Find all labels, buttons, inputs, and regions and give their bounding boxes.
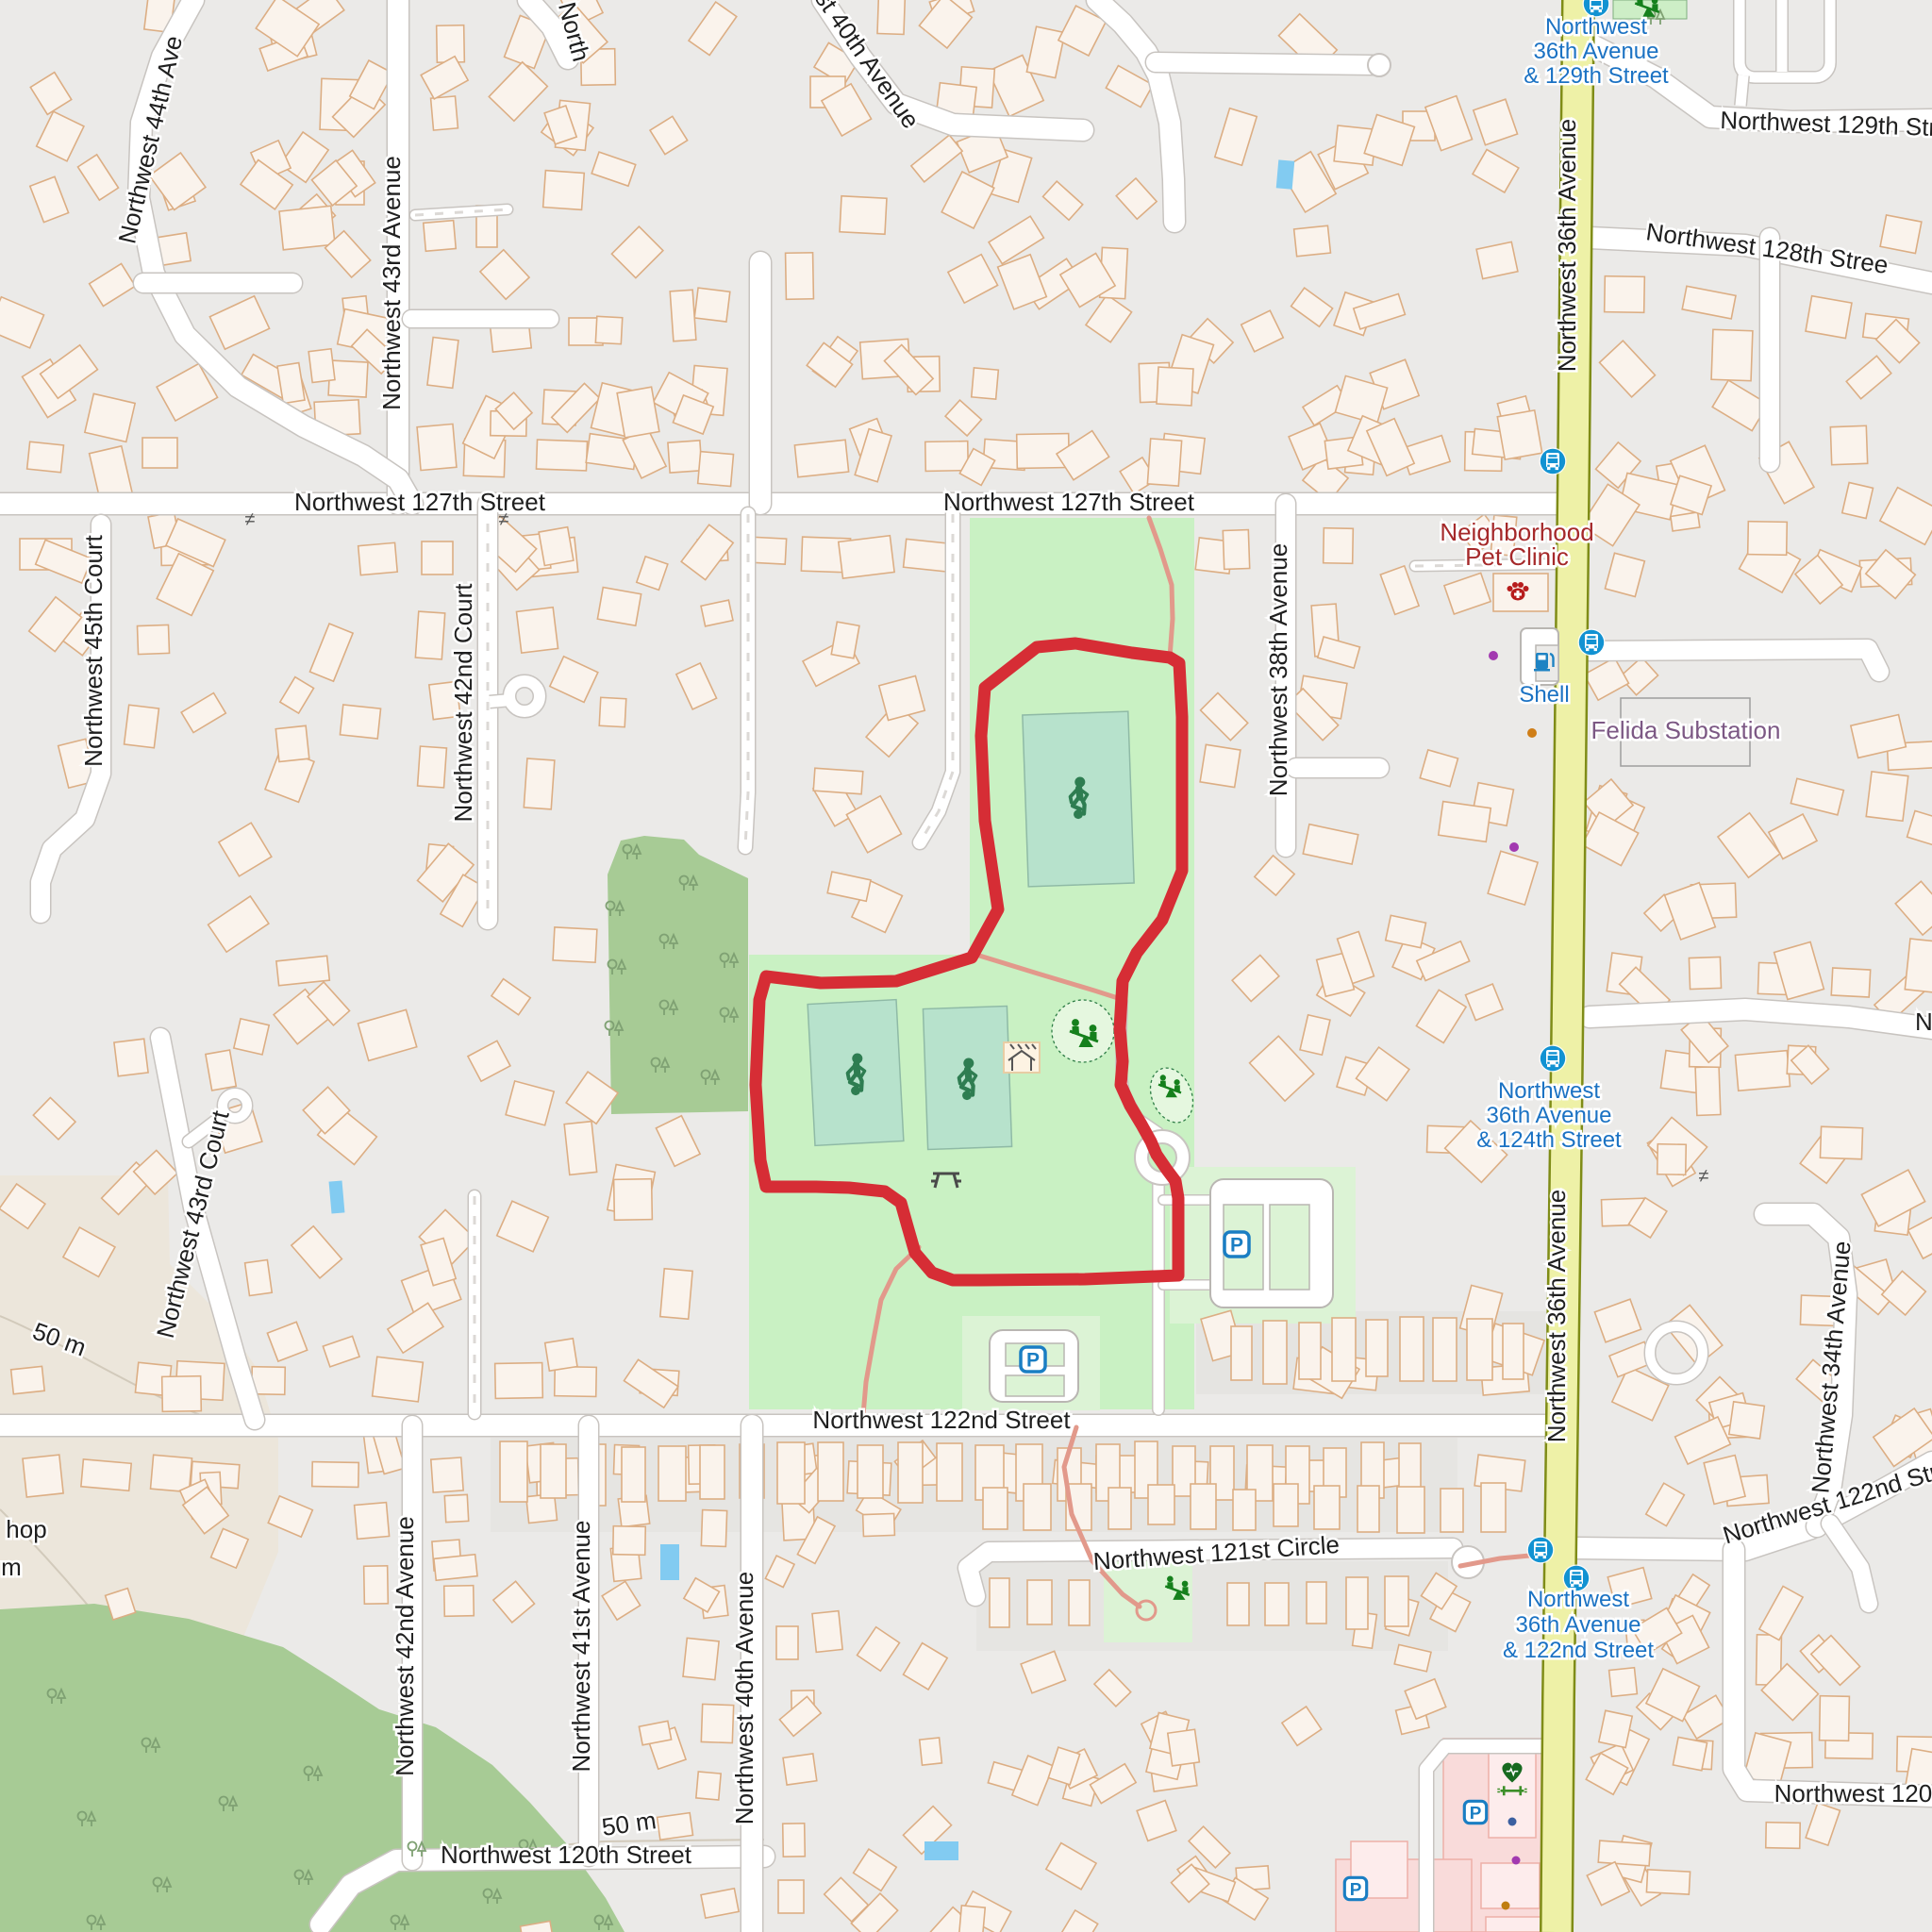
svg-text:& 122nd Street: & 122nd Street (1503, 1638, 1654, 1663)
svg-text:Northwest 41st Avenue: Northwest 41st Avenue (567, 1521, 595, 1773)
svg-text:≠: ≠ (1699, 1166, 1709, 1187)
svg-text:Northwest 36th Avenue: Northwest 36th Avenue (1542, 1190, 1571, 1442)
svg-text:P: P (1026, 1350, 1040, 1372)
svg-text:P: P (1470, 1804, 1482, 1824)
svg-text:Shell: Shell (1519, 682, 1569, 708)
svg-text:Northwest 43rd Avenue: Northwest 43rd Avenue (377, 156, 406, 410)
svg-text:m: m (1, 1553, 22, 1581)
svg-text:Northwest: Northwest (1498, 1078, 1600, 1104)
svg-text:36th Avenue: 36th Avenue (1533, 39, 1658, 64)
svg-text:≠: ≠ (245, 509, 256, 530)
svg-text:Northwest 120th Street: Northwest 120th Street (441, 1840, 692, 1869)
svg-text:Northwest 40th Avenue: Northwest 40th Avenue (730, 1572, 758, 1824)
svg-text:Northwest 38th Avenue: Northwest 38th Avenue (1264, 543, 1292, 796)
svg-text:Nort: Nort (1915, 1008, 1932, 1036)
svg-text:Northwest 120t: Northwest 120t (1774, 1779, 1932, 1807)
svg-text:Northwest 45th Court: Northwest 45th Court (79, 534, 108, 766)
svg-text:Northwest: Northwest (1527, 1587, 1629, 1612)
svg-text:hop: hop (6, 1515, 46, 1543)
svg-text:Northwest 42nd Court: Northwest 42nd Court (449, 583, 477, 823)
svg-text:Northwest 36th Avenue: Northwest 36th Avenue (1553, 119, 1581, 372)
svg-text:& 129th Street: & 129th Street (1524, 63, 1669, 89)
svg-text:Northwest 127th Street: Northwest 127th Street (943, 488, 1195, 516)
svg-text:36th Avenue: 36th Avenue (1486, 1103, 1611, 1128)
svg-text:& 124th Street: & 124th Street (1476, 1127, 1622, 1153)
svg-text:Felida Substation: Felida Substation (1591, 716, 1781, 744)
svg-text:36th Avenue: 36th Avenue (1515, 1612, 1641, 1638)
svg-text:P: P (1230, 1235, 1243, 1257)
svg-text:P: P (1350, 1880, 1362, 1900)
svg-text:Northwest: Northwest (1545, 14, 1647, 40)
svg-text:Pet Clinic: Pet Clinic (1465, 542, 1569, 571)
svg-text:Northwest 122nd Street: Northwest 122nd Street (812, 1406, 1071, 1434)
svg-text:Northwest 127th Street: Northwest 127th Street (294, 488, 546, 516)
svg-text:Northwest 42nd Avenue: Northwest 42nd Avenue (391, 1516, 419, 1776)
